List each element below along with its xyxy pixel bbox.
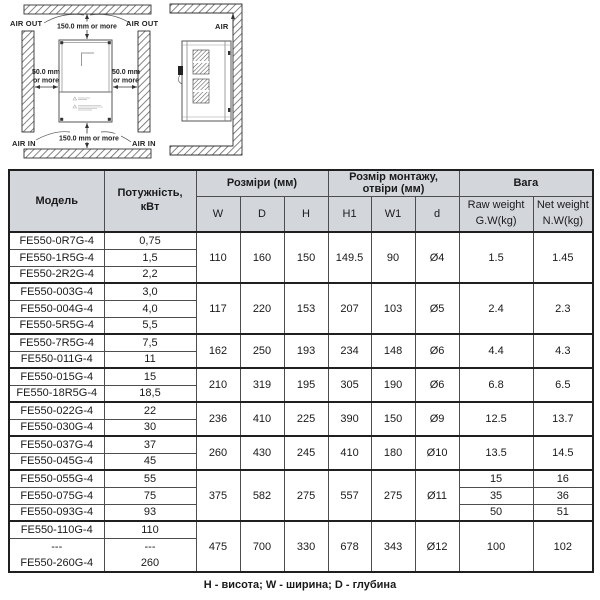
mount-h1-cell: 390 [328,402,371,436]
raw-weight-cell: 13.5 [459,436,533,470]
power-cell: 30 [104,419,196,436]
col-group-mounting: Розмір монтажу, отвіри (мм) [328,170,459,196]
power-cell: 4,0 [104,300,196,317]
right-clearance-line1: 50.0 mm [112,69,140,76]
dim-d-cell: 430 [240,436,284,470]
mount-w1-cell: 103 [371,283,415,334]
dim-d-cell: 220 [240,283,284,334]
bottom-clearance-label: 150.0 mm or more [59,136,119,143]
net-weight-cell: 6.5 [533,368,593,402]
mount-h1-cell: 678 [328,521,371,572]
col-header-d-hole: d [415,196,459,232]
model-cell: FE550-055G-4 [9,470,104,487]
power-cell: 0,75 [104,232,196,249]
power-cell: 18,5 [104,385,196,402]
air-out-left-label: AIR OUT [10,19,42,28]
screw-icon [60,41,63,44]
col-header-d: D [240,196,284,232]
mount-d-cell: Ø6 [415,368,459,402]
net-weight-cell: 14.5 [533,436,593,470]
air-in-left-label: AIR IN [12,139,36,148]
raw-weight-cell: 2.4 [459,283,533,334]
table-row: FE550-110G-4 110 475 700 330 678 343 Ø12… [9,521,593,538]
raw-weight-cell: 6.8 [459,368,533,402]
model-cell: FE550-045G-4 [9,453,104,470]
screw-icon [108,118,111,121]
dimensions-table: Модель Потужність, кВт Розміри (мм) Розм… [8,169,594,573]
table-row: FE550-0R7G-4 0,75 110 160 150 149.5 90 Ø… [9,232,593,249]
power-cell: 15 [104,368,196,385]
mount-w1-cell: 275 [371,470,415,521]
left-clearance-line2: or more [33,78,59,85]
model-cell: FE550-1R5G-4 [9,249,104,266]
inverter-side-view [178,41,231,121]
dim-w-cell: 210 [196,368,240,402]
dim-d-cell: 160 [240,232,284,283]
mount-w1-cell: 150 [371,402,415,436]
mount-w1-cell: 90 [371,232,415,283]
right-clearance-line2: or more [113,78,139,85]
mount-d-cell: Ø9 [415,402,459,436]
model-cell: FE550-037G-4 [9,436,104,453]
air-out-right-label: AIR OUT [126,19,158,28]
mount-h1-cell: 410 [328,436,371,470]
net-weight-cell: 4.3 [533,334,593,368]
model-cell: FE550-110G-4 [9,521,104,538]
page: 150.0 mm or more AIR OUT AIR OUT 50.0 mm… [0,0,600,600]
power-cell: 37 [104,436,196,453]
left-clearance-dimension: 50.0 mm or more [32,69,60,89]
power-cell: 22 [104,402,196,419]
clearance-diagram: 150.0 mm or more AIR OUT AIR OUT 50.0 mm… [4,2,266,160]
power-cell: 3,0 [104,283,196,300]
raw-weight-cell: 4.4 [459,334,533,368]
screw-icon [60,118,63,121]
mount-d-cell: Ø10 [415,436,459,470]
model-cell: FE550-011G-4 [9,351,104,368]
power-cell: 7,5 [104,334,196,351]
mount-w1-cell: 180 [371,436,415,470]
left-clearance-line1: 50.0 mm [32,69,60,76]
model-cell: FE550-075G-4 [9,487,104,504]
mount-w1-cell: 148 [371,334,415,368]
raw-weight-cell: 15 [459,470,533,487]
top-clearance-dimension: 150.0 mm or more [44,14,130,39]
raw-weight-cell: 35 [459,487,533,504]
table-row: FE550-022G-4 22 236 410 225 390 150 Ø9 1… [9,402,593,419]
col-header-power: Потужність, кВт [104,170,196,232]
dim-w-cell: 117 [196,283,240,334]
model-cell: FE550-003G-4 [9,283,104,300]
model-cell: FE550-0R7G-4 [9,232,104,249]
dim-d-cell: 700 [240,521,284,572]
model-cell: FE550-260G-4 [9,555,104,572]
dim-w-cell: 236 [196,402,240,436]
dim-h-cell: 225 [284,402,328,436]
mount-d-cell: Ø6 [415,334,459,368]
power-cell: 45 [104,453,196,470]
dim-d-cell: 319 [240,368,284,402]
net-weight-cell: 16 [533,470,593,487]
col-header-net-weight: Net weight N.W(kg) [533,196,593,232]
screw-icon [108,41,111,44]
dim-h-cell: 330 [284,521,328,572]
right-clearance-dimension: 50.0 mm or more [112,69,140,89]
net-weight-cell: 36 [533,487,593,504]
power-cell: 1,5 [104,249,196,266]
power-cell: 11 [104,351,196,368]
model-cell: FE550-18R5G-4 [9,385,104,402]
dim-d-cell: 582 [240,470,284,521]
net-weight-cell: 1.45 [533,232,593,283]
col-header-w: W [196,196,240,232]
power-cell: 110 [104,521,196,538]
mount-h1-cell: 234 [328,334,371,368]
model-cell: FE550-015G-4 [9,368,104,385]
bottom-clearance-dimension: 150.0 mm or more [36,123,131,148]
side-air-flow: AIR [215,13,235,31]
dim-h-cell: 275 [284,470,328,521]
mount-h1-cell: 557 [328,470,371,521]
dim-h-cell: 153 [284,283,328,334]
raw-weight-cell: 50 [459,504,533,521]
power-cell: --- [104,538,196,555]
dim-w-cell: 475 [196,521,240,572]
air-in-right-label: AIR IN [132,139,156,148]
table-row: FE550-055G-4 55 375 582 275 557 275 Ø11 … [9,470,593,487]
col-header-model: Модель [9,170,104,232]
net-weight-cell: 13.7 [533,402,593,436]
table-row: FE550-003G-4 3,0 117 220 153 207 103 Ø5 … [9,283,593,300]
side-knob [178,66,183,75]
model-cell: FE550-7R5G-4 [9,334,104,351]
power-cell: 75 [104,487,196,504]
power-cell: 260 [104,555,196,572]
model-cell: FE550-022G-4 [9,402,104,419]
table-row: FE550-037G-4 37 260 430 245 410 180 Ø10 … [9,436,593,453]
raw-weight-cell: 12.5 [459,402,533,436]
col-header-h1: H1 [328,196,371,232]
mount-d-cell: Ø11 [415,470,459,521]
dim-w-cell: 110 [196,232,240,283]
mount-d-cell: Ø12 [415,521,459,572]
dim-h-cell: 195 [284,368,328,402]
net-weight-cell: 51 [533,504,593,521]
raw-weight-cell: 1.5 [459,232,533,283]
mount-w1-cell: 343 [371,521,415,572]
top-clearance-label: 150.0 mm or more [57,24,117,31]
dim-w-cell: 260 [196,436,240,470]
mount-w1-cell: 190 [371,368,415,402]
table-row: FE550-7R5G-4 7,5 162 250 193 234 148 Ø6 … [9,334,593,351]
model-cell: FE550-030G-4 [9,419,104,436]
mount-h1-cell: 305 [328,368,371,402]
model-cell: --- [9,538,104,555]
power-cell: 93 [104,504,196,521]
inverter-front-view [59,40,112,122]
mount-d-cell: Ø4 [415,232,459,283]
mounting-diagrams: 150.0 mm or more AIR OUT AIR OUT 50.0 mm… [4,2,600,165]
power-cell: 55 [104,470,196,487]
power-cell: 2,2 [104,266,196,283]
dim-d-cell: 410 [240,402,284,436]
col-header-h: H [284,196,328,232]
col-group-weight: Вага [459,170,593,196]
air-label: AIR [215,22,229,31]
power-cell: 5,5 [104,317,196,334]
net-weight-cell: 2.3 [533,283,593,334]
dim-h-cell: 245 [284,436,328,470]
model-cell: FE550-093G-4 [9,504,104,521]
col-header-w1: W1 [371,196,415,232]
col-header-raw-weight: Raw weight G.W(kg) [459,196,533,232]
net-weight-cell: 102 [533,521,593,572]
col-group-dimensions: Розміри (мм) [196,170,328,196]
legend-footnote: Н - висота; W - ширина; D - глубина [0,579,600,591]
mount-d-cell: Ø5 [415,283,459,334]
dim-w-cell: 162 [196,334,240,368]
raw-weight-cell: 100 [459,521,533,572]
dim-w-cell: 375 [196,470,240,521]
model-cell: FE550-2R2G-4 [9,266,104,283]
model-cell: FE550-5R5G-4 [9,317,104,334]
dim-h-cell: 193 [284,334,328,368]
dim-d-cell: 250 [240,334,284,368]
model-cell: FE550-004G-4 [9,300,104,317]
mount-h1-cell: 207 [328,283,371,334]
mount-h1-cell: 149.5 [328,232,371,283]
table-row: FE550-015G-4 15 210 319 195 305 190 Ø6 6… [9,368,593,385]
dim-h-cell: 150 [284,232,328,283]
